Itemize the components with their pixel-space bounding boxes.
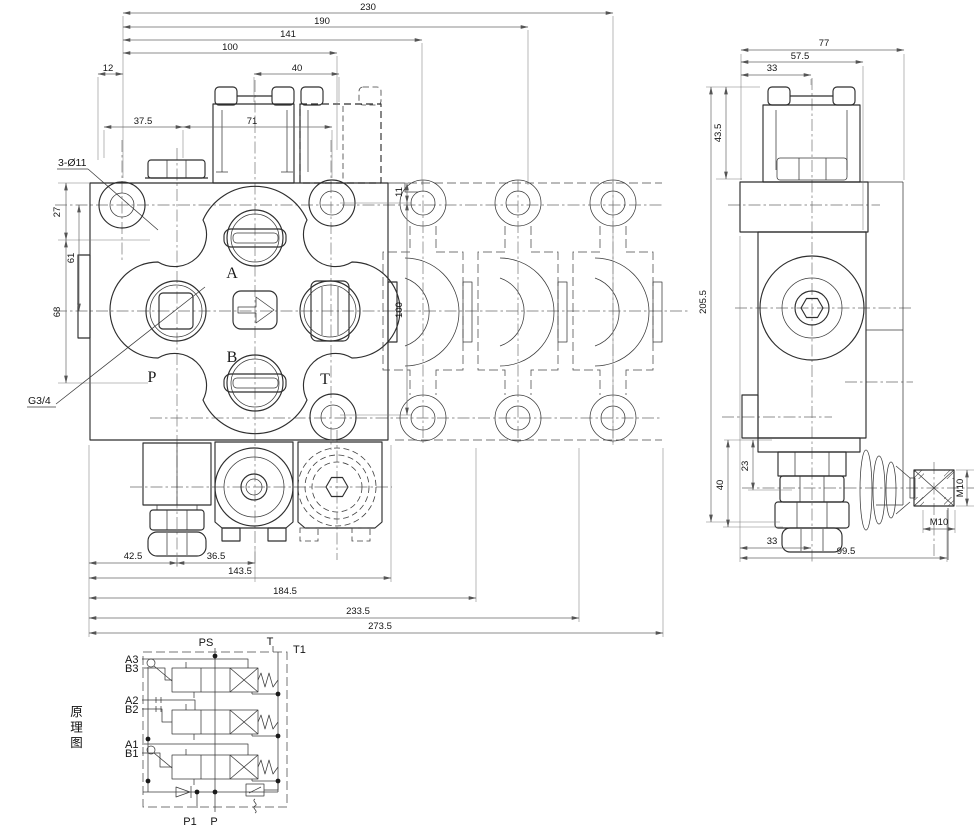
dim-100-right: 100: [394, 302, 405, 318]
side-flange: [740, 182, 868, 232]
label-b3: B3: [125, 663, 138, 675]
port-label-p: P: [148, 369, 157, 386]
dim-230: 230: [360, 2, 376, 13]
side-view: 77 57.5 33 43.5 205.5 23 40 33 99.5 M10 …: [698, 38, 974, 562]
label-t: T: [267, 636, 274, 648]
port-label-a: A: [226, 265, 238, 282]
dim-143-5: 143.5: [228, 566, 252, 577]
dim-205-5: 205.5: [698, 290, 709, 314]
phantom-section: [573, 180, 662, 443]
side-body: [740, 87, 903, 505]
schematic-wires: [142, 659, 248, 767]
label-p1: P1: [183, 816, 196, 828]
dim-43-5: 43.5: [713, 124, 724, 143]
port-label-b: B: [227, 349, 238, 366]
dim-57-5: 57.5: [791, 51, 810, 62]
dim-190: 190: [314, 16, 330, 27]
port-label-t: T: [320, 371, 330, 388]
relief-valve-cap-hidden: [298, 442, 382, 541]
dim-12: 12: [103, 63, 114, 74]
bottom-attachments: [143, 442, 382, 556]
hydraulic-schematic: PS T T1 A3 B3 A2 B2 A1 B1 P1 P: [125, 636, 306, 828]
side-dimensions: 77 57.5 33 43.5 205.5 23 40 33 99.5 M10 …: [698, 38, 974, 562]
dim-42-5: 42.5: [124, 551, 143, 562]
phantom-section: [478, 180, 567, 443]
label-t1: T1: [293, 644, 306, 656]
dim-27: 27: [52, 207, 63, 218]
valve-section-2: [172, 704, 278, 740]
dim-m10-bottom: M10: [930, 517, 948, 528]
label-p: P: [210, 816, 217, 828]
side-centerlines: [722, 78, 974, 562]
dim-233-5: 233.5: [346, 606, 370, 617]
front-dimensions: 230 190 141 100 40 12 37.5 71 27 61 68 1…: [27, 2, 663, 637]
relief-valve-symbol: [246, 782, 278, 796]
thread-callout-text: G3/4: [28, 395, 51, 407]
dim-36-5: 36.5: [207, 551, 226, 562]
label-b1: B1: [125, 748, 138, 760]
port-p: [146, 281, 206, 341]
drawing-canvas: 230 190 141 100 40 12 37.5 71 27 61 68 1…: [0, 0, 974, 836]
valve-body-front: [78, 180, 418, 440]
mounting-hole-bottom-right: [310, 394, 356, 440]
lever-icon: [147, 659, 155, 667]
top-caps: [145, 87, 381, 183]
thread-callout: G3/4: [27, 287, 205, 407]
phantom-sections: [383, 180, 662, 443]
dim-11: 11: [394, 187, 405, 197]
dim-77: 77: [819, 38, 830, 49]
dim-37-5: 37.5: [134, 116, 153, 127]
dim-23: 23: [740, 461, 751, 472]
dim-141: 141: [280, 29, 296, 40]
spool-assembly: [758, 438, 954, 560]
break-symbol: [254, 799, 256, 813]
valve-section-3: [147, 659, 278, 698]
dim-68: 68: [52, 307, 63, 318]
hole-callout: 3-Ø11: [57, 157, 158, 230]
bellows-boot: [860, 450, 915, 530]
hole-callout-text: 3-Ø11: [58, 157, 87, 169]
hex-plug-top: [145, 160, 208, 178]
dim-33-top: 33: [767, 63, 778, 74]
label-b2: B2: [125, 704, 138, 716]
left-flange: [78, 255, 90, 338]
dim-40: 40: [715, 480, 726, 491]
front-view: 230 190 141 100 40 12 37.5 71 27 61 68 1…: [27, 2, 690, 637]
dim-m10-side: M10: [955, 479, 966, 497]
end-cap-round: [215, 442, 293, 541]
valve-section-1: [147, 746, 278, 785]
valve-engineering-drawing: 230 190 141 100 40 12 37.5 71 27 61 68 1…: [0, 0, 974, 836]
dim-71: 71: [247, 116, 258, 127]
label-ps: PS: [199, 637, 214, 649]
dim-61: 61: [66, 253, 77, 264]
dim-99-5: 99.5: [837, 546, 856, 557]
dim-40: 40: [292, 63, 303, 74]
dim-273-5: 273.5: [368, 621, 392, 632]
front-centerlines: [55, 80, 690, 566]
schematic-caption: 原理图: [66, 705, 85, 752]
dim-100-top: 100: [222, 42, 238, 53]
valve-body-outline: [90, 183, 388, 440]
dim-33-bottom: 33: [767, 536, 778, 547]
dim-184-5: 184.5: [273, 586, 297, 597]
